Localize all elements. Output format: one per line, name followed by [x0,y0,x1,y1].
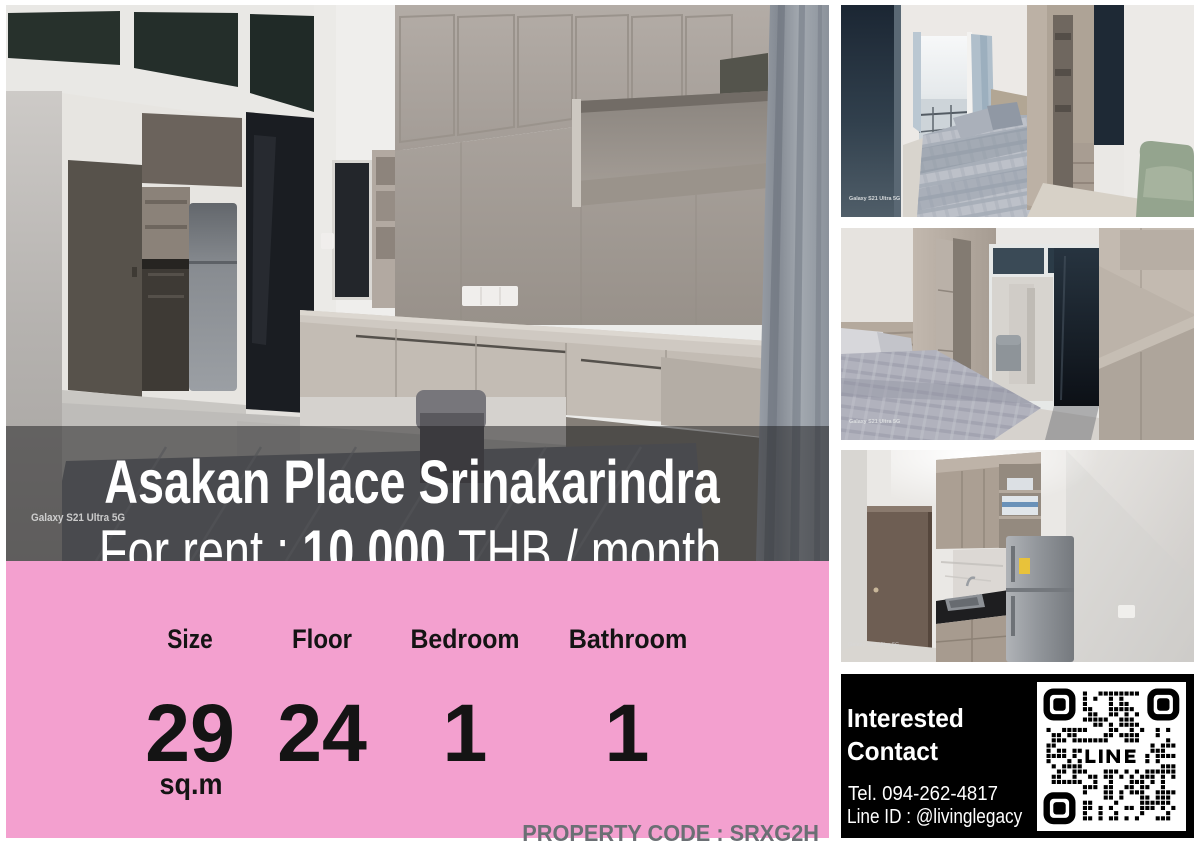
svg-text:Galaxy S21 Ultra 5G: Galaxy S21 Ultra 5G [849,196,900,202]
svg-text:Galaxy S21 Ultra 5G: Galaxy S21 Ultra 5G [848,642,899,648]
svg-text:Galaxy S21 Ultra 5G: Galaxy S21 Ultra 5G [849,419,900,425]
